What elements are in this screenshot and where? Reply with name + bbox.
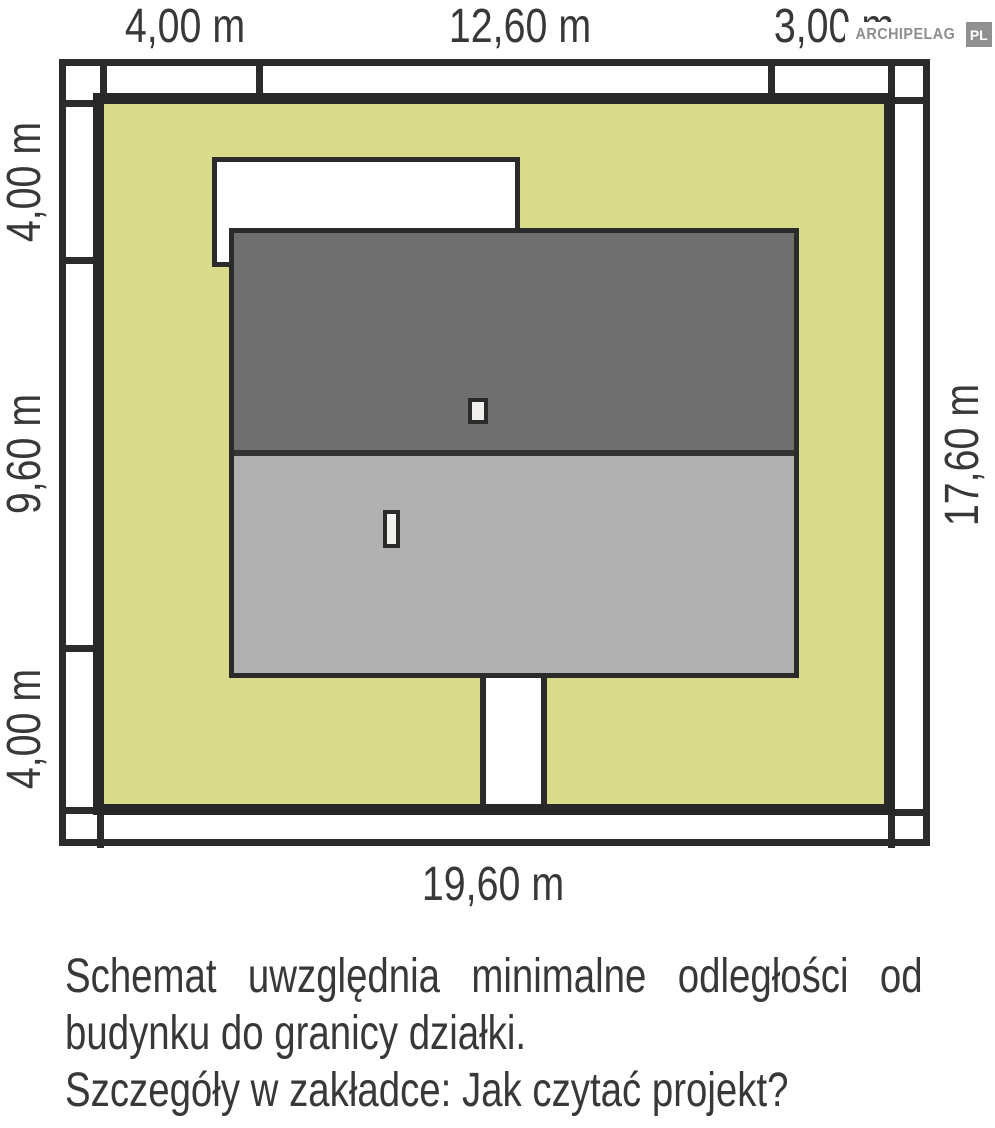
dimension-label-top-left: 4,00 m <box>95 0 275 52</box>
chimney <box>468 398 488 424</box>
dimension-tick <box>888 812 895 848</box>
site-plan-sheet: 4,00 m 12,60 m 3,00 m 4,00 m 9,60 m 4,00… <box>0 0 995 1128</box>
archipelag-logo: ARCHIPELAG PL <box>845 22 992 47</box>
chimney <box>383 510 400 548</box>
dimension-label-left-lower: 4,00 m <box>0 639 50 819</box>
dimension-label-bottom: 19,60 m <box>403 858 583 910</box>
caption-line-2: budynku do granicy działki. <box>65 1005 923 1062</box>
caption-line-1: Schemat uwzględnia minimalne odległości … <box>65 948 923 1005</box>
dimension-tick <box>888 60 895 96</box>
dimension-label-top-center: 12,60 m <box>430 0 610 52</box>
dimension-tick <box>893 97 929 104</box>
dimension-label-left-upper: 4,00 m <box>0 92 50 272</box>
dimension-label-left-middle: 9,60 m <box>0 364 50 544</box>
dimension-tick <box>893 809 929 816</box>
caption-line-3: Szczegóły w zakładce: Jak czytać projekt… <box>65 1062 923 1119</box>
dimension-tick <box>97 812 104 848</box>
dimension-tick <box>100 60 107 96</box>
logo-pl-text: PL <box>970 27 988 43</box>
driveway-path <box>480 678 547 804</box>
logo-pl-box: PL <box>966 22 992 47</box>
building-footprint <box>229 228 799 678</box>
dimension-tick <box>256 60 263 96</box>
roof-upper-slope <box>234 233 794 450</box>
roof-lower-slope <box>234 456 794 673</box>
caption-text: Schemat uwzględnia minimalne odległości … <box>65 948 923 1119</box>
logo-notch-square <box>941 41 949 49</box>
dimension-label-right: 17,60 m <box>936 365 988 545</box>
dimension-tick <box>768 60 775 96</box>
